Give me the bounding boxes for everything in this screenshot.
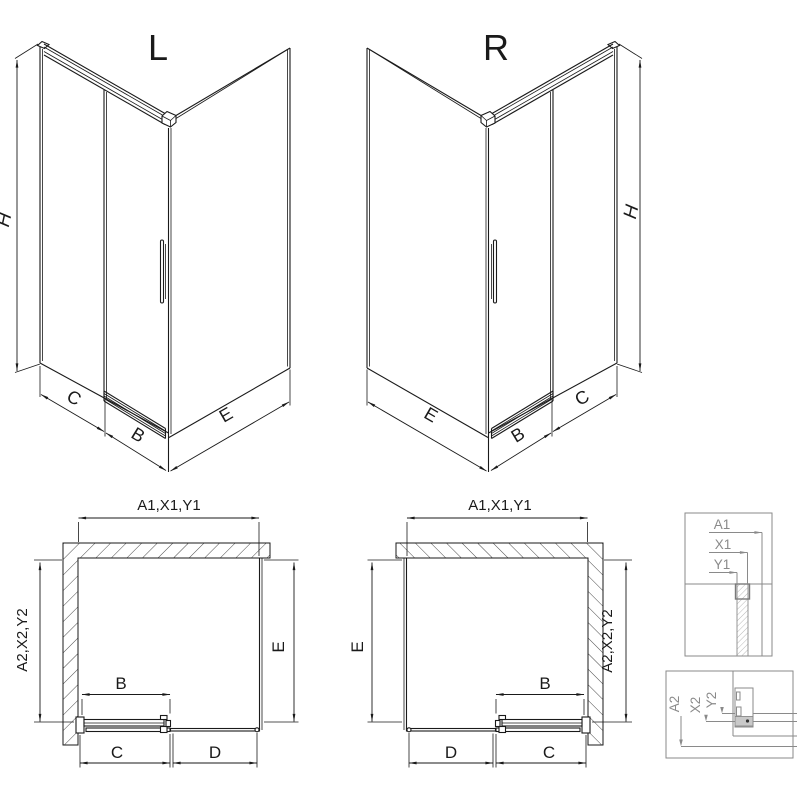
plan-left-dim-top: A1,X1,Y1 — [137, 497, 200, 514]
iso-right-dim-e: E — [421, 403, 441, 426]
plan-right-dim-b: B — [539, 674, 550, 693]
detail-label-a2: A2 — [667, 696, 682, 713]
detail-label-y2: Y2 — [704, 692, 719, 709]
iso-view-left: L H C B E — [0, 27, 290, 472]
plan-left-dim-d: D — [209, 743, 221, 762]
iso-left-dim-h: H — [0, 211, 16, 229]
plan-view-right: A1,X1,Y1 E A2,X2,Y2 B D C — [348, 497, 632, 768]
iso-right-dim-c: C — [571, 386, 592, 410]
plan-view-left: A1,X1,Y1 A2,X2,Y2 E B C D — [14, 497, 299, 768]
plan-right-dim-top: A1,X1,Y1 — [468, 497, 531, 514]
plan-left-dim-b: B — [115, 674, 126, 693]
plan-right-dim-e: E — [348, 641, 367, 652]
detail-label-y1: Y1 — [714, 557, 731, 572]
plan-right-dim-c: C — [543, 743, 555, 762]
iso-right-title: R — [483, 27, 509, 68]
iso-left-dim-e: E — [216, 403, 236, 426]
detail-label-x1: X1 — [715, 537, 732, 552]
plan-left-dim-left: A2,X2,Y2 — [14, 608, 31, 671]
detail-label-a1: A1 — [714, 517, 731, 532]
plan-right-dim-d: D — [445, 743, 457, 762]
shower-enclosure-drawing: L H C B E R H E B C A1,X1,Y1 A2,X2,Y2 E … — [0, 0, 800, 800]
iso-left-dim-b: B — [128, 423, 149, 446]
detail-a2x2y2: A2 X2 Y2 — [666, 671, 797, 758]
detail-a1x1y1: A1 X1 Y1 — [685, 513, 772, 656]
technical-drawing-canvas: L H C B E R H E B C A1,X1,Y1 A2,X2,Y2 E … — [0, 0, 800, 800]
plan-left-dim-e: E — [269, 641, 288, 652]
iso-left-dim-c: C — [63, 386, 84, 410]
detail-label-x2: X2 — [688, 697, 703, 714]
plan-left-dim-c: C — [111, 743, 123, 762]
plan-right-dim-right: A2,X2,Y2 — [599, 609, 616, 672]
iso-left-title: L — [148, 27, 168, 68]
iso-view-right: R H E B C — [367, 27, 643, 472]
iso-right-dim-b: B — [508, 423, 529, 446]
